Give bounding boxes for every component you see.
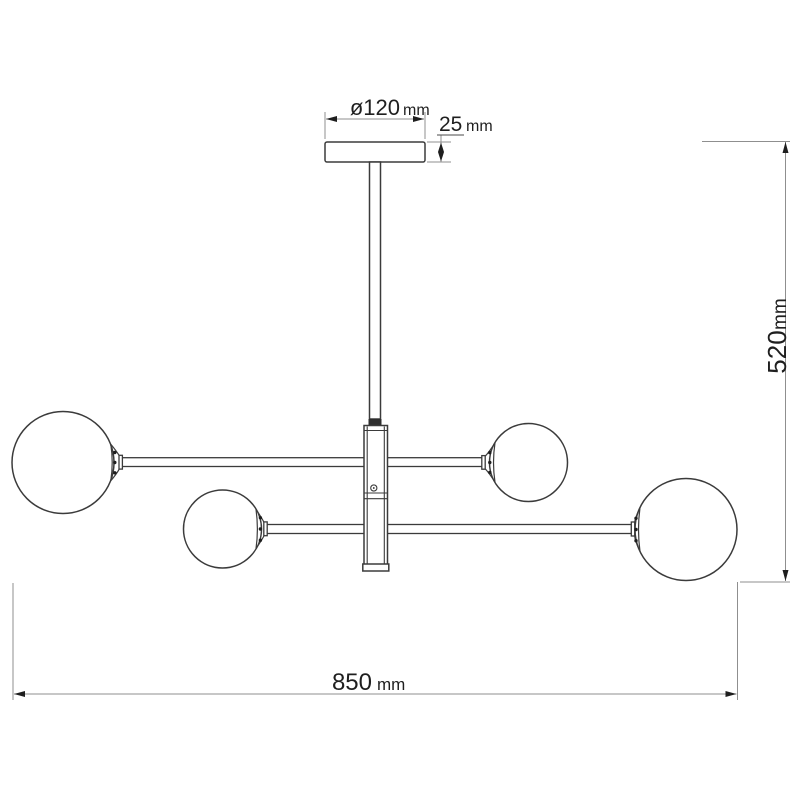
dim-canopy-diameter: ø120 mm [325, 95, 430, 139]
holder-screw-icon [259, 516, 262, 519]
dimension-drawing-canvas: ø120 mm 25 mm 520 mm 850 mm [0, 0, 800, 800]
body-bottom-cap [363, 564, 389, 571]
arrow-left-icon [326, 116, 337, 122]
overall-height-unit: mm [770, 298, 791, 330]
screw-center-icon [373, 487, 375, 489]
rod-connector [369, 419, 382, 426]
fixture-diagram: ø120 mm 25 mm 520 mm 850 mm [0, 0, 800, 800]
suspension-rod [370, 162, 381, 419]
canopy-diameter-value: ø120 [350, 95, 400, 120]
holder-screw-icon [634, 517, 637, 520]
lower-arm [267, 525, 632, 534]
overall-width-value: 850 [332, 669, 372, 696]
holder-flange [119, 455, 122, 469]
holder-screw-icon [634, 539, 637, 542]
canopy-diameter-unit: mm [403, 102, 430, 119]
holder-screw-icon [113, 461, 116, 464]
ceiling-canopy [325, 142, 425, 162]
holder-flange [482, 456, 485, 470]
canopy-height-value: 25 [439, 113, 462, 136]
holder-screw-icon [259, 539, 262, 542]
arrow-up-icon [783, 142, 789, 153]
holder-screw-icon [488, 471, 491, 474]
holder-lower-right [631, 508, 640, 552]
arrow-right-icon [726, 691, 737, 697]
canopy-height-unit: mm [466, 118, 493, 135]
holder-screw-icon [488, 451, 491, 454]
dim-canopy-height: 25 mm [427, 113, 493, 162]
globe-lower-right [635, 479, 737, 581]
globe-upper-left [12, 412, 114, 514]
holder-screw-icon [259, 527, 262, 530]
globe-lower-left [184, 490, 262, 568]
globe-upper-right [490, 424, 568, 502]
central-body [363, 426, 389, 572]
arrow-left-icon [14, 691, 25, 697]
arrow-down-icon [438, 152, 444, 162]
arrow-down-icon [783, 570, 789, 581]
holder-flange [631, 522, 634, 536]
dim-overall-width: 850 mm [13, 582, 738, 700]
holder-screw-icon [634, 528, 637, 531]
upper-arm [122, 458, 483, 467]
overall-width-unit: mm [377, 675, 405, 694]
arrow-up-icon [438, 143, 444, 153]
holder-flange [264, 522, 267, 536]
holder-screw-icon [113, 471, 116, 474]
holder-screw-icon [488, 461, 491, 464]
holder-screw-icon [113, 451, 116, 454]
overall-height-value: 520 [762, 330, 792, 373]
